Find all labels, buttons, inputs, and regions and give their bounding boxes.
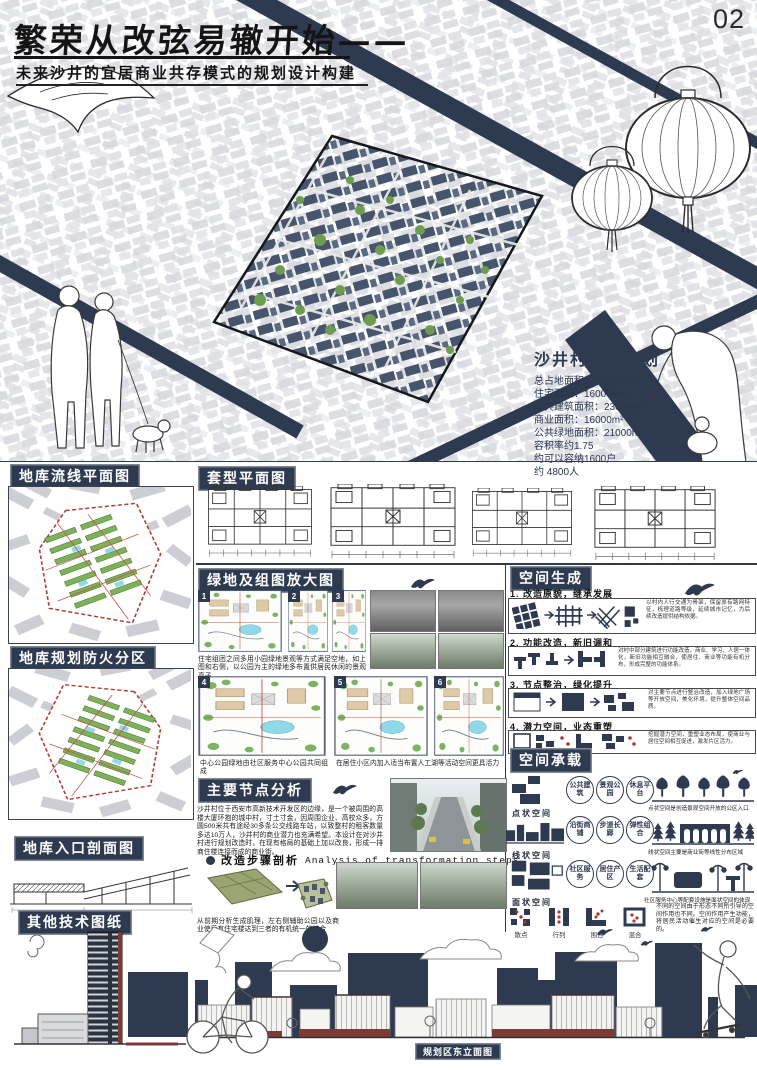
unit-floor-plan xyxy=(328,484,458,562)
divider xyxy=(0,461,757,462)
area-space-diagram xyxy=(510,858,564,894)
space-tag: 休息平台 xyxy=(626,776,654,804)
point-space-diagram xyxy=(510,774,554,806)
bullet-icon xyxy=(206,856,215,865)
community-silhouette xyxy=(652,854,754,896)
space-tag: 弹性组合 xyxy=(626,816,654,844)
stat-line: 公共建筑面积：23000m² xyxy=(534,401,754,414)
space-tag: 公共建筑 xyxy=(566,776,594,804)
space-tag: 景观公园 xyxy=(596,776,624,804)
bird-icon xyxy=(330,782,360,798)
subtitle-underline xyxy=(16,84,368,86)
stat-line: 约 4800人 xyxy=(534,466,754,479)
stat-line: 商业面积：16000m² xyxy=(534,414,754,427)
bird-icon xyxy=(682,580,718,600)
node-analysis-paragraph: 沙井村位于西安市高新技术开发区的边缘，是一个被周围的高楼大厦环抱的城中村，寸土寸… xyxy=(197,806,383,858)
space-tag: 生活配套 xyxy=(626,860,654,888)
node-render-thumbnail xyxy=(336,862,418,909)
stat-line: 住宅面积：160000m² xyxy=(534,388,754,401)
space-tag: 社区服务 xyxy=(566,860,594,888)
street-render-thumbnail xyxy=(438,633,504,669)
section-label-node-analysis: 主要节点分析 xyxy=(198,778,312,803)
stats-heading: 沙井村区域规划 xyxy=(534,346,754,370)
divider xyxy=(196,563,757,565)
plan-number-tab: 1 xyxy=(198,590,210,602)
step-desc: 以村内人行交通为骨架，保留原有路网特征，梳理道路等级，延续城市记忆，为后续改造提… xyxy=(646,600,750,620)
page-number: 02 xyxy=(713,4,745,35)
step-desc: 挖掘潜力空间，重塑业态布局，使商业与居住空间相互促进，激发片区活力。 xyxy=(648,732,750,746)
space-tag: 沿街商铺 xyxy=(566,816,594,844)
space-tag: 步道长廊 xyxy=(596,816,624,844)
generation-diagram-3 xyxy=(512,691,642,713)
street-silhouette xyxy=(652,812,754,848)
step-desc: 对主要节点进行整治改造，加入绿地广场等开放空间，美化环境，提升整体空间品质。 xyxy=(648,690,750,710)
page-title: 繁荣从改弦易辙开始—— xyxy=(12,14,411,62)
plan-number-tab: 3 xyxy=(332,590,344,602)
section-label-space-capacity: 空间承载 xyxy=(510,748,592,773)
node-render-thumbnail xyxy=(420,862,507,909)
elevation-label: 规划区东立面图 xyxy=(415,1043,501,1060)
sun-icon xyxy=(302,926,328,952)
title-underline xyxy=(14,56,350,59)
green-caption-right: 在居住小区内加入适当布置人工湖等活动空间更具活力 xyxy=(336,760,502,768)
green-plan-4 xyxy=(198,676,326,756)
kite-doodle xyxy=(200,927,234,973)
unit-floor-plan xyxy=(592,486,718,564)
elevation-strip xyxy=(198,995,662,1037)
stat-line: 公共绿地面积：21000m² xyxy=(534,427,754,440)
bird-icon xyxy=(597,927,713,946)
presentation-board: 繁荣从改弦易辙开始—— 未来沙井的宜居商业共存模式的规划设计构建 02 沙井村区… xyxy=(0,0,757,1070)
stat-line: 容积率约1.75 xyxy=(534,440,754,453)
green-caption-center: 中心公园绿地由社区服务中心公园共同组成 xyxy=(200,760,328,777)
stat-line: 约可以容纳1600户 xyxy=(534,453,754,466)
aerial-render-thumbnail xyxy=(438,590,504,632)
site-statistics: 沙井村区域规划 总占地面积：220000m² 住宅面积：160000m² 公共建… xyxy=(534,346,754,479)
plan-number-tab: 4 xyxy=(198,676,210,688)
garage-flow-plan xyxy=(8,486,194,644)
plan-number-tab: 5 xyxy=(334,676,346,688)
generation-diagram-2 xyxy=(512,649,612,671)
unit-floor-plan xyxy=(206,486,314,560)
site-plan-drawing xyxy=(9,669,191,817)
green-plan-6 xyxy=(434,676,504,756)
green-plan-1 xyxy=(198,590,282,652)
skyline-elevation-illustration xyxy=(0,925,757,1070)
plan-number-tab: 2 xyxy=(288,590,300,602)
step-desc: 对村中部分建筑进行功能改造，商业、学习、人居一体化，新旧功能相互融合，使居住、商… xyxy=(618,648,750,668)
garage-entrance-section-drawing xyxy=(6,858,196,916)
generation-diagram-1 xyxy=(512,601,640,629)
garage-fire-plan xyxy=(8,668,194,820)
stat-line: 总占地面积：220000m² xyxy=(534,375,754,388)
street-render-thumbnail xyxy=(370,633,436,669)
transformation-diagram xyxy=(198,866,333,914)
green-plan-5 xyxy=(334,676,428,756)
site-plan-drawing xyxy=(9,487,191,641)
space-tag: 居住产区 xyxy=(596,860,624,888)
plan-number-tab: 6 xyxy=(434,676,446,688)
aerial-render-thumbnail xyxy=(370,590,436,632)
linear-space-diagram xyxy=(506,818,564,848)
page-subtitle: 未来沙井的宜居商业共存模式的规划设计构建 xyxy=(16,62,356,83)
unit-floor-plan xyxy=(470,488,574,560)
street-node-render xyxy=(390,778,507,852)
trees-silhouette xyxy=(652,770,754,804)
